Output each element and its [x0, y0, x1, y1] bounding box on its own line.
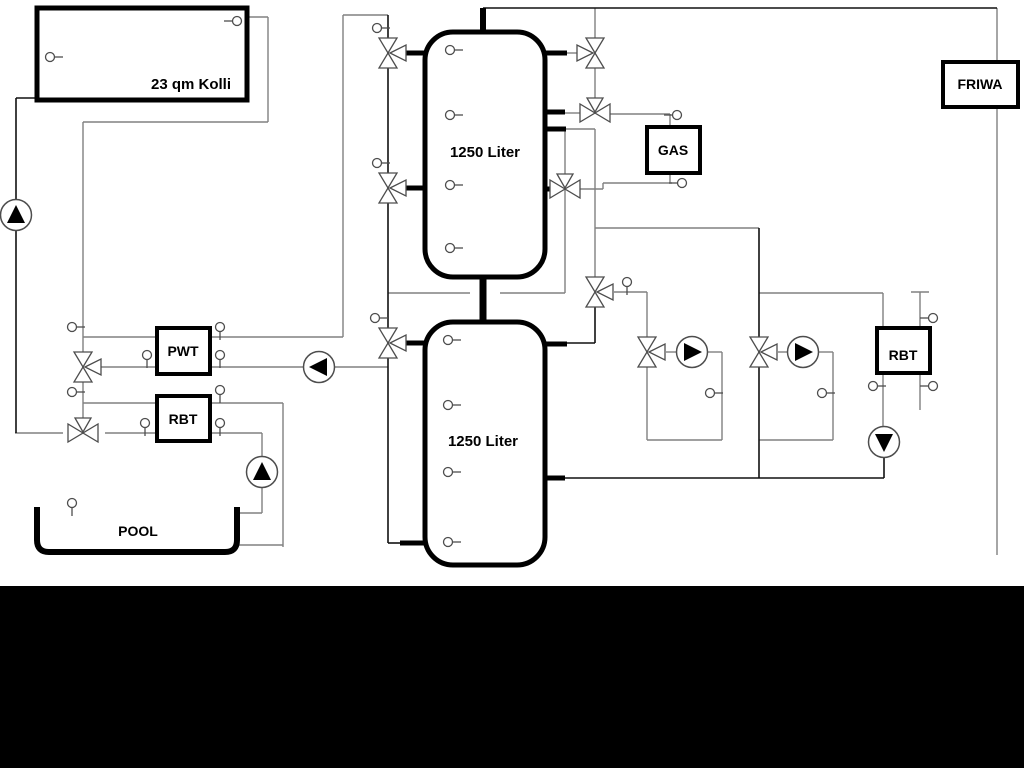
- sensor-bulb: [678, 179, 687, 188]
- valve-triangle: [85, 359, 101, 375]
- temp-sensor-icon: [920, 382, 938, 391]
- pump-icon: [247, 457, 278, 488]
- sensor-bulb: [46, 53, 55, 62]
- temp-sensor-icon: [68, 499, 77, 517]
- sensor-bulb: [233, 17, 242, 26]
- three-way-valve-icon: [586, 277, 613, 307]
- sensor-bulb: [446, 111, 455, 120]
- sensor-bulb: [818, 389, 827, 398]
- sensor-bulb: [444, 538, 453, 547]
- sensor-bulb: [444, 336, 453, 345]
- pool-label: POOL: [118, 523, 158, 539]
- sensor-bulb: [68, 323, 77, 332]
- sensor-bulb: [216, 351, 225, 360]
- three-way-valve-icon: [580, 98, 610, 122]
- sensor-bulb: [446, 244, 455, 253]
- schematic-page: 23 qm KolliPWTRBTGASFRIWARBT1250 Liter12…: [0, 0, 1024, 768]
- sensor-bulb: [373, 24, 382, 33]
- valve-triangle: [390, 335, 406, 351]
- friwa-label: FRIWA: [957, 76, 1002, 92]
- sensor-bulb: [706, 389, 715, 398]
- gas-label: GAS: [658, 142, 688, 158]
- collector-label: 23 qm Kolli: [151, 76, 231, 93]
- pwt-label: PWT: [167, 343, 199, 359]
- three-way-valve-icon: [577, 38, 604, 68]
- temp-sensor-icon: [664, 111, 682, 120]
- temp-sensor-icon: [143, 351, 152, 369]
- three-way-valve-icon: [68, 418, 98, 442]
- pump-icon: [869, 427, 900, 458]
- sensor-bulb: [623, 278, 632, 287]
- bottom-black-band: [0, 586, 1024, 768]
- sensor-bulb: [141, 419, 150, 428]
- temp-sensor-icon: [371, 314, 389, 323]
- sensor-bulb: [869, 382, 878, 391]
- tank1-label: 1250 Liter: [450, 144, 520, 161]
- temp-sensor-icon: [706, 389, 724, 398]
- sensor-bulb: [216, 386, 225, 395]
- sensor-bulb: [929, 314, 938, 323]
- temp-sensor-icon: [920, 314, 938, 323]
- sensor-bulb: [446, 46, 455, 55]
- three-way-valve-icon: [750, 337, 777, 367]
- sensor-bulb: [446, 181, 455, 190]
- pump-icon: [788, 337, 819, 368]
- valve-triangle: [390, 45, 406, 61]
- pump-icon: [304, 352, 335, 383]
- sensor-bulb: [143, 351, 152, 360]
- sensor-bulb: [929, 382, 938, 391]
- sensor-bulb: [68, 388, 77, 397]
- sensor-bulb: [373, 159, 382, 168]
- rbt-right-label: RBT: [889, 347, 918, 363]
- sensor-bulb: [216, 323, 225, 332]
- sensor-bulb: [216, 419, 225, 428]
- temp-sensor-icon: [216, 386, 225, 404]
- three-way-valve-icon: [379, 328, 406, 358]
- sensor-bulb: [444, 401, 453, 410]
- temp-sensor-icon: [669, 179, 687, 188]
- sensor-bulb: [444, 468, 453, 477]
- sensor-bulb: [673, 111, 682, 120]
- valve-triangle: [761, 344, 777, 360]
- three-way-valve-icon: [379, 38, 406, 68]
- three-way-valve-icon: [638, 337, 665, 367]
- valve-triangle: [649, 344, 665, 360]
- pump-icon: [1, 200, 32, 231]
- valve-triangle: [577, 45, 593, 61]
- three-way-valve-icon: [379, 173, 406, 203]
- valve-triangle: [390, 180, 406, 196]
- temp-sensor-icon: [216, 351, 225, 369]
- system-schematic: 23 qm KolliPWTRBTGASFRIWARBT1250 Liter12…: [0, 0, 1024, 768]
- tank2-label: 1250 Liter: [448, 433, 518, 450]
- rbt-left-label: RBT: [169, 411, 198, 427]
- sensor-bulb: [68, 499, 77, 508]
- three-way-valve-icon: [74, 352, 101, 382]
- pump-icon: [677, 337, 708, 368]
- valve-triangle: [597, 284, 613, 300]
- diagram-canvas: 23 qm KolliPWTRBTGASFRIWARBT1250 Liter12…: [0, 0, 1024, 768]
- sensor-bulb: [371, 314, 380, 323]
